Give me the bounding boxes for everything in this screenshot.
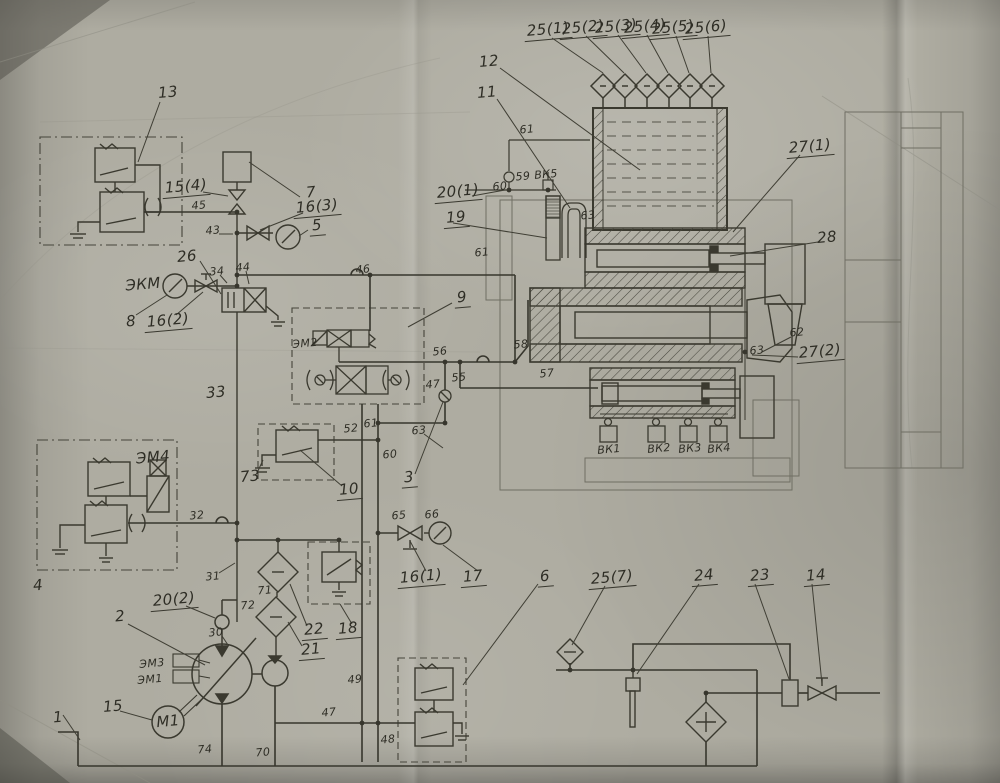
label-46: 46 [355,262,371,276]
label-56: 56 [432,344,448,358]
label-16-1: 16(1) [396,565,446,589]
label-62: 62 [789,325,805,339]
label-em2: ЭМ2 [292,336,318,351]
label-9: 9 [453,287,471,308]
label-23: 23 [746,565,774,587]
label-61-low: 61 [363,416,379,430]
label-32: 32 [189,508,205,522]
label-74: 74 [197,742,213,756]
label-4: 4 [32,576,43,595]
label-20-1: 20(1) [433,180,483,204]
label-73: 73 [239,466,260,486]
label-65: 65 [391,508,407,522]
label-em1: ЭМ1 [137,672,163,687]
label-28: 28 [816,227,837,247]
label-26: 26 [176,246,197,266]
label-60-top: 60 [492,179,508,193]
labels-layer: 25(1)25(2)25(3)25(4)25(5)25(6)12116159ВК… [0,0,1000,783]
label-33: 33 [205,382,226,402]
label-5: 5 [308,215,326,236]
label-44: 44 [235,260,251,274]
label-58: 58 [513,337,529,351]
label-59: 59 [515,169,531,183]
label-18: 18 [334,618,362,640]
label-21: 21 [297,639,325,661]
label-27-2: 27(2) [795,340,845,364]
label-11: 11 [476,82,497,102]
label-55: 55 [451,370,467,384]
label-3: 3 [400,467,418,488]
label-61-top: 61 [519,122,535,136]
label-66: 66 [424,507,440,521]
label-30: 30 [208,625,224,639]
label-13: 13 [157,82,178,102]
label-24: 24 [690,565,718,587]
label-47-check: 47 [425,377,441,391]
label-vk1: ВК1 [597,442,622,457]
label-43: 43 [205,223,221,237]
label-15-4: 15(4) [161,175,211,199]
label-25-6: 25(6) [681,16,731,40]
label-vk4: ВК4 [707,441,732,456]
label-em4: ЭМ4 [135,447,171,468]
label-6: 6 [536,566,554,587]
label-2: 2 [114,607,125,626]
label-19: 19 [442,207,470,229]
label-63-mid: 63 [411,423,427,437]
label-8: 8 [125,312,136,331]
label-12: 12 [478,51,499,71]
label-71: 71 [257,583,273,597]
label-15: 15 [102,696,123,716]
label-61-mid: 61 [474,245,490,259]
label-52: 52 [343,421,359,435]
label-63-top: 63 [580,208,596,222]
label-ekm: ЭКМ [125,274,162,295]
label-22: 22 [300,619,328,641]
label-10: 10 [335,479,363,501]
label-16-2: 16(2) [143,309,193,333]
label-57: 57 [539,366,555,380]
label-25-7: 25(7) [587,566,637,590]
label-vk2: ВК2 [647,441,672,456]
blueprint-scan: 25(1)25(2)25(3)25(4)25(5)25(6)12116159ВК… [0,0,1000,783]
label-70: 70 [255,745,271,759]
label-1: 1 [52,708,63,727]
label-27-1: 27(1) [785,135,835,159]
label-60-low: 60 [382,447,398,461]
label-45: 45 [191,198,207,212]
label-72: 72 [240,598,256,612]
label-em3: ЭМ3 [139,656,165,671]
label-49: 49 [347,672,363,686]
label-34: 34 [209,264,225,278]
label-vk3: ВК3 [678,441,703,456]
label-m1: М1 [156,711,181,731]
label-31: 31 [205,569,221,583]
label-vk5: ВК5 [534,167,559,182]
label-20-2: 20(2) [149,588,199,612]
label-17: 17 [459,566,487,588]
label-14: 14 [802,565,830,587]
label-63-right: 63 [749,343,765,357]
label-48: 48 [380,732,396,746]
label-47-line: 47 [321,705,337,719]
